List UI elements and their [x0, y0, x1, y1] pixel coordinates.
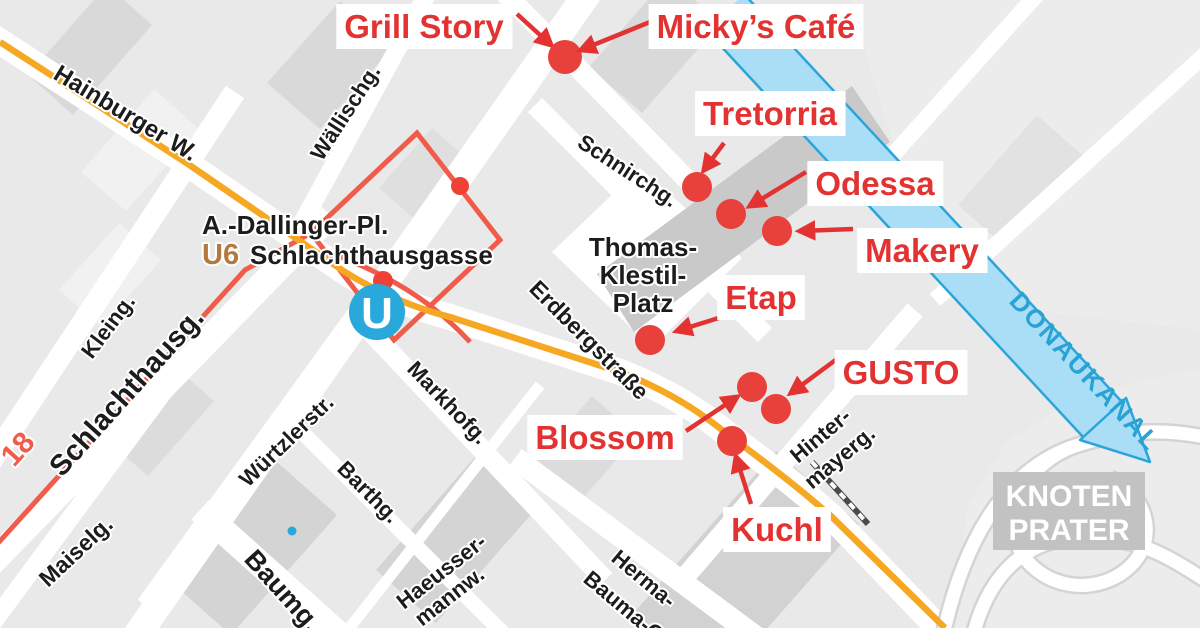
city-map: U Hainburger W.Wällischg.Schnirchg.Klein…	[0, 0, 1200, 628]
poi-label: Etap	[725, 279, 797, 316]
poi-dot	[635, 325, 665, 355]
junction-sign-line2: PRATER	[1008, 514, 1129, 547]
poi-dot	[762, 216, 792, 246]
poi-dot	[716, 199, 746, 229]
poi-label: Kuchl	[731, 511, 823, 548]
poi-label: Makery	[865, 232, 979, 269]
poi-dot	[548, 40, 582, 74]
poi-dot	[717, 426, 747, 456]
poi-dot	[682, 172, 712, 202]
map-label-platz: Platz	[613, 288, 674, 318]
poi-label: Grill Story	[344, 8, 504, 45]
poi-label: Micky’s Café	[657, 8, 856, 45]
ubahn-u-glyph: U	[361, 289, 393, 338]
junction-sign-line1: KNOTEN	[1006, 480, 1133, 513]
map-label-klestil: Klestil-	[600, 260, 687, 290]
poi-label: GUSTO	[843, 354, 960, 391]
map-canvas: U Hainburger W.Wällischg.Schnirchg.Klein…	[0, 0, 1200, 628]
map-label-u6: U6	[202, 239, 239, 271]
poi-label: Tretorria	[703, 95, 838, 132]
map-label-thomas: Thomas-	[589, 232, 697, 262]
tram-stop-dot	[451, 177, 469, 195]
poi-dot	[737, 372, 767, 402]
ubahn-station-symbol: U	[349, 284, 405, 340]
map-label-a-dallinger-pl: A.-Dallinger-Pl.	[202, 210, 388, 240]
map-label-schlachthausgasse: Schlachthausgasse	[250, 240, 493, 270]
poi-arrow	[800, 229, 853, 231]
knoten-prater-sign: KNOTEN PRATER	[993, 472, 1145, 550]
poi-label: Blossom	[535, 419, 674, 456]
poi-dot	[761, 394, 791, 424]
mini-blue-dot	[288, 527, 297, 536]
poi-label: Odessa	[815, 165, 935, 202]
